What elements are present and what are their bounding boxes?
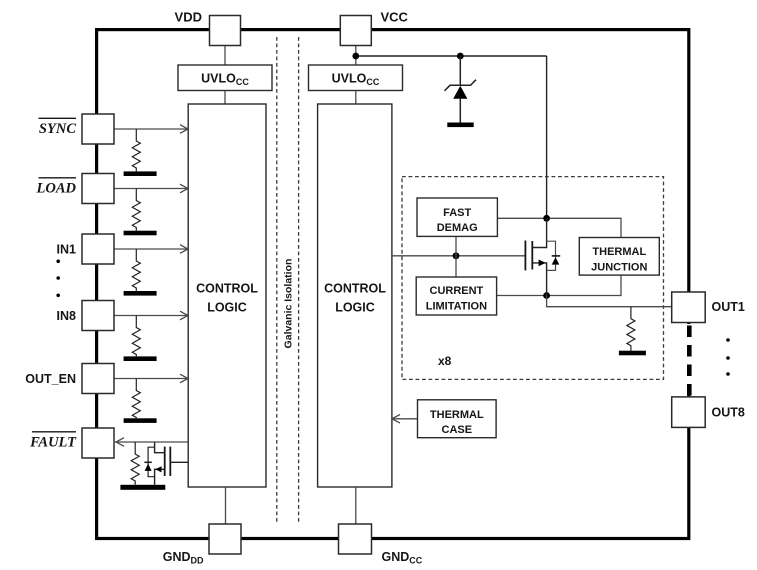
- svg-text:LIMITATION: LIMITATION: [426, 301, 487, 313]
- svg-text:CURRENT: CURRENT: [430, 285, 484, 297]
- svg-text:FAULT: FAULT: [29, 435, 77, 451]
- svg-text:x8: x8: [438, 354, 452, 368]
- svg-text:Galvanic Isolation: Galvanic Isolation: [282, 259, 294, 349]
- svg-text:GNDDD: GNDDD: [163, 550, 204, 566]
- svg-text:THERMAL: THERMAL: [592, 246, 646, 258]
- svg-text:LOGIC: LOGIC: [207, 301, 247, 315]
- svg-text:OUT_EN: OUT_EN: [25, 372, 76, 386]
- svg-text:JUNCTION: JUNCTION: [591, 262, 647, 274]
- svg-text:FAST: FAST: [443, 207, 471, 219]
- svg-text:THERMAL: THERMAL: [430, 409, 484, 421]
- svg-text:LOGIC: LOGIC: [335, 301, 375, 315]
- svg-text:CONTROL: CONTROL: [196, 282, 258, 296]
- svg-text:DEMAG: DEMAG: [437, 222, 478, 234]
- svg-text:OUT8: OUT8: [712, 406, 745, 420]
- svg-text:GNDCC: GNDCC: [382, 550, 423, 566]
- svg-text:SYNC: SYNC: [39, 121, 76, 137]
- svg-text:CASE: CASE: [442, 424, 473, 436]
- svg-text:IN8: IN8: [57, 309, 77, 323]
- svg-text:OUT1: OUT1: [712, 300, 745, 314]
- svg-text:IN1: IN1: [57, 243, 77, 257]
- svg-text:LOAD: LOAD: [36, 181, 77, 197]
- svg-text:VDD: VDD: [175, 10, 202, 25]
- svg-text:VCC: VCC: [381, 10, 409, 25]
- svg-text:CONTROL: CONTROL: [324, 282, 386, 296]
